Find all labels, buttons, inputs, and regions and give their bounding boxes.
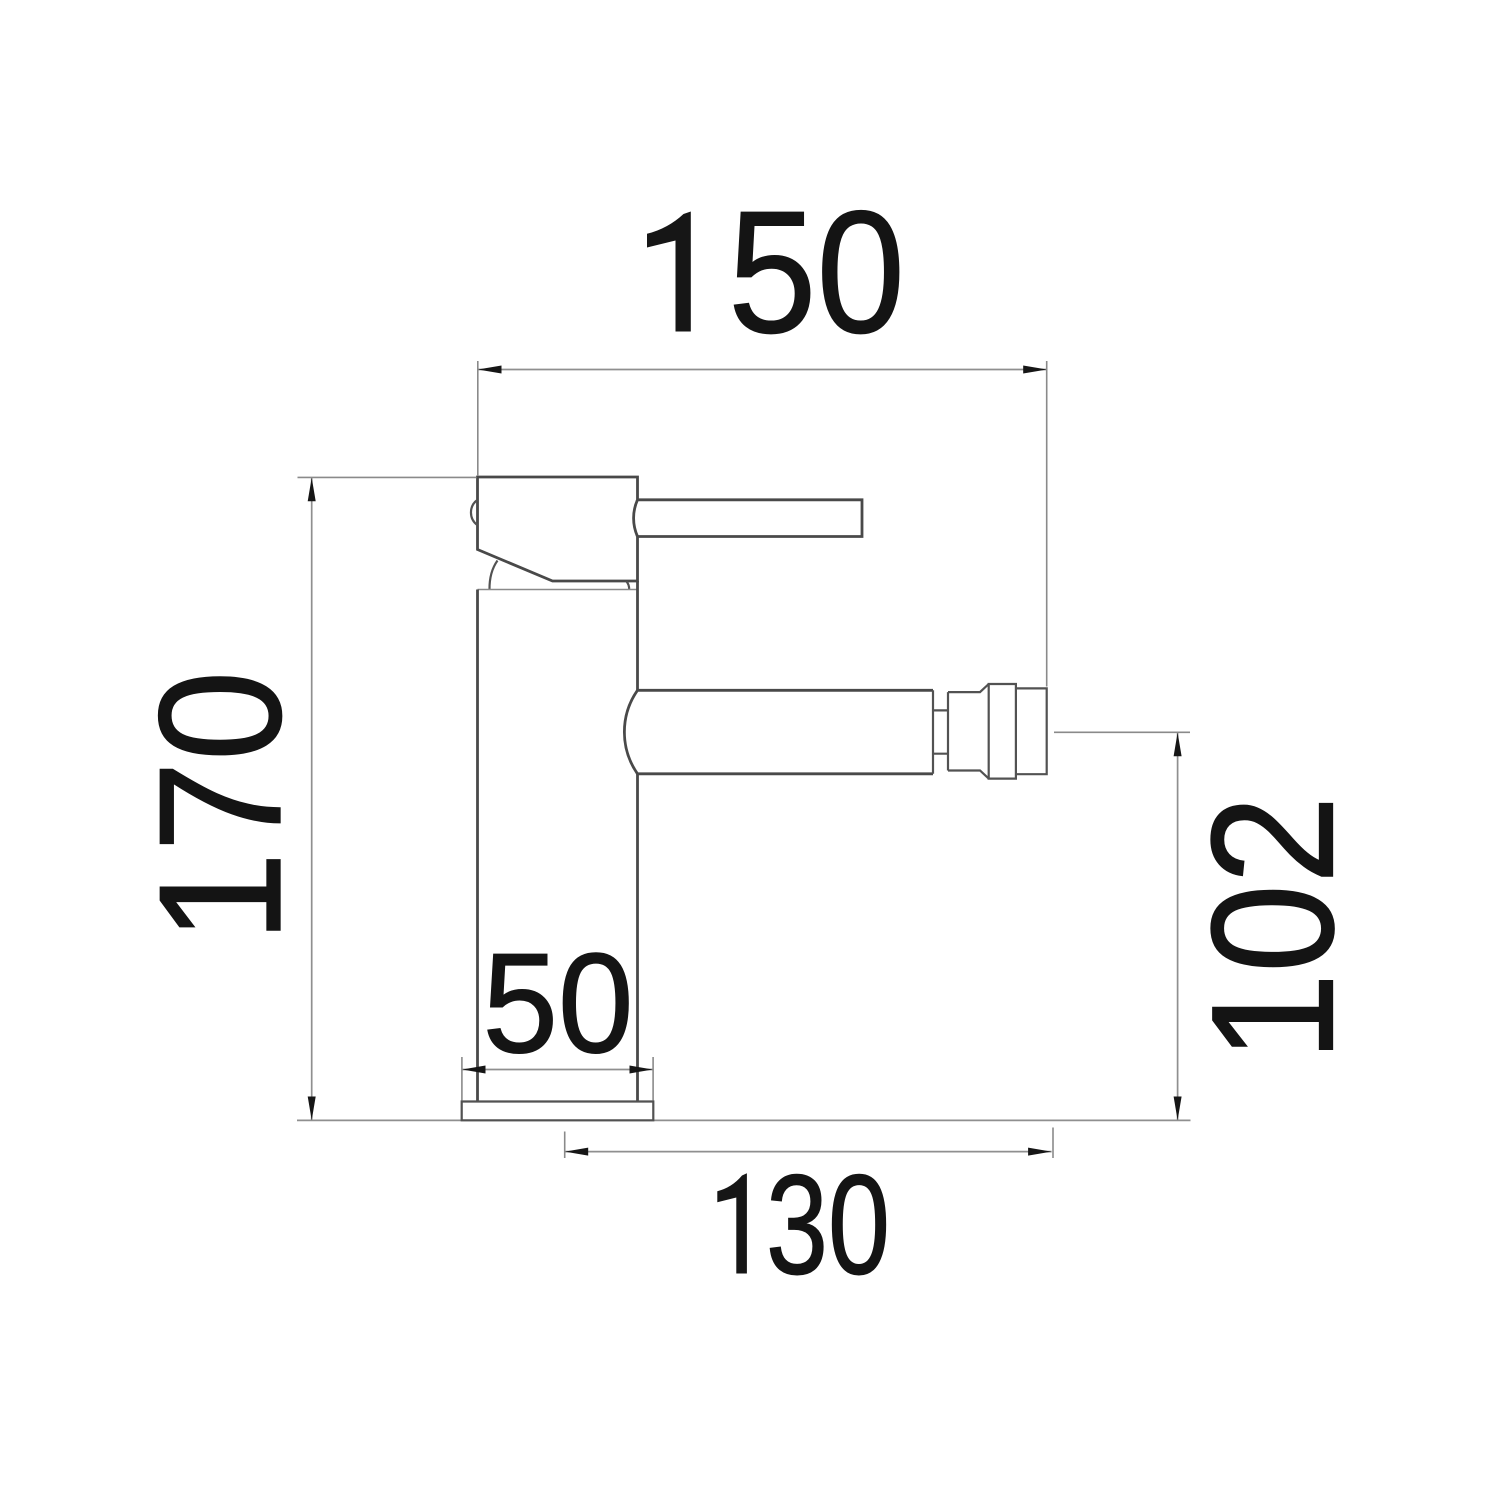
svg-text:102: 102 — [1175, 796, 1370, 1062]
svg-text:30: 30 — [766, 1146, 890, 1305]
svg-text:50: 50 — [728, 174, 905, 369]
svg-text:170: 170 — [122, 671, 317, 943]
svg-text:50: 50 — [483, 924, 634, 1083]
